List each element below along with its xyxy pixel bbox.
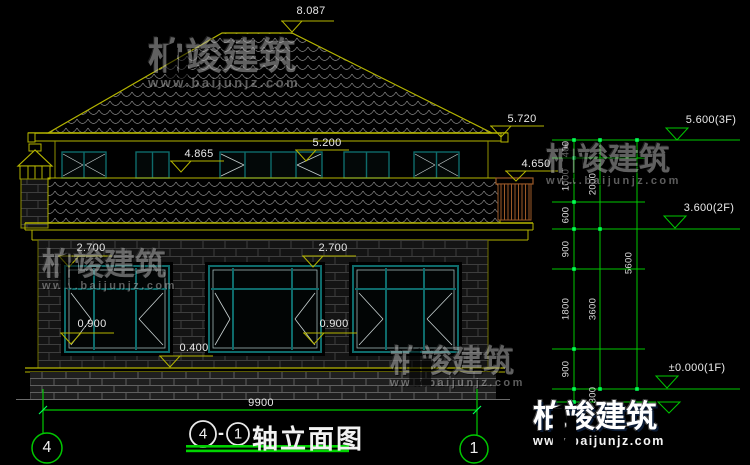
axis-number-right: 1 (470, 440, 479, 458)
level-sill-left-label: 0.900 (77, 318, 106, 330)
level-lintel-left-label: 2.700 (76, 242, 105, 254)
level-floor1-label: ±0.000(1F) (669, 362, 726, 374)
chain-dim-900b: 900 (561, 361, 572, 378)
chain-dim-400: 400 (561, 141, 572, 158)
window-1f-3 (349, 262, 462, 356)
axis-number-left: 4 (43, 439, 52, 457)
drawing-title: 轴立面图 (252, 419, 364, 456)
window-1f-1 (61, 262, 173, 356)
level-lintel-right-label: 2.700 (318, 242, 347, 254)
elevation-drawing (0, 0, 750, 465)
title-axis-start: 4 (199, 426, 207, 443)
chain-dim-3600: 3600 (588, 298, 599, 320)
level-sill-right-label: 0.900 (319, 318, 348, 330)
chain-dim-600: 600 (561, 207, 572, 224)
upper-window-3 (220, 152, 322, 178)
upper-window-1 (62, 152, 106, 178)
chain-dim-2000: 2000 (588, 173, 599, 195)
balcony-railing (496, 178, 533, 220)
upper-window-2 (136, 152, 169, 178)
level-floor2-label: 3.600(2F) (684, 202, 734, 214)
level-4865-label: 4.865 (184, 148, 213, 160)
chimney (18, 144, 52, 228)
window-1f-2 (205, 262, 325, 356)
title-axis-end: 1 (234, 426, 242, 443)
brand-logo-icon (533, 401, 587, 459)
chain-dim-900a: 900 (561, 241, 572, 258)
level-ridge-label: 8.087 (296, 5, 325, 17)
skirt-roof (25, 178, 533, 240)
brand-logo: 柏竣建筑 www.baijunjz.com (533, 401, 750, 450)
level-plinth-label: 0.400 (179, 342, 208, 354)
chain-dim-5600: 5600 (624, 252, 635, 274)
upper-window-4 (344, 152, 389, 178)
title-dash: - (218, 423, 224, 444)
chain-dim-1000: 1000 (561, 169, 572, 191)
upper-floor-windows (62, 152, 459, 178)
upper-window-5 (414, 152, 459, 178)
level-floor3-label: 5.600(3F) (686, 114, 736, 126)
cad-elevation-screenshot: 8.087 5.720 5.200 4.865 4.650 5.600(3F) … (0, 0, 750, 465)
level-eave-label: 5.720 (507, 113, 536, 125)
total-width-dim: 9900 (248, 397, 274, 409)
chain-dim-1800: 1800 (561, 298, 572, 320)
first-floor-windows (61, 262, 462, 356)
level-5200-label: 5.200 (312, 137, 341, 149)
level-balcony-label: 4.650 (521, 158, 550, 170)
